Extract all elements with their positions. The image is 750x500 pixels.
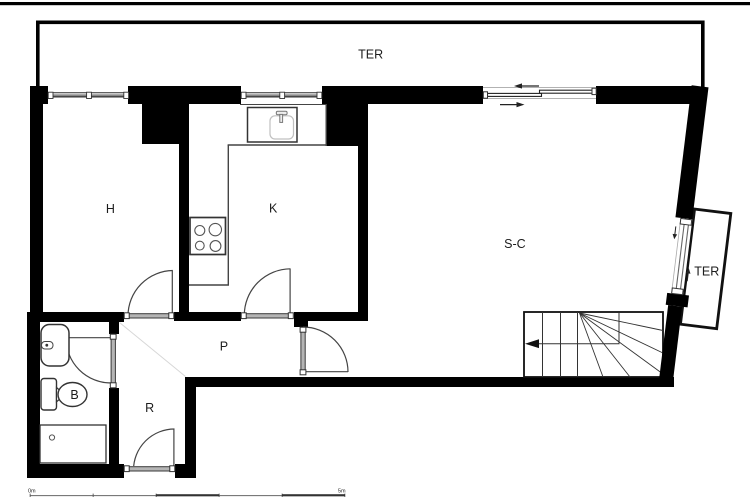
svg-text:5m: 5m xyxy=(338,489,346,495)
svg-text:S-C: S-C xyxy=(504,237,526,251)
svg-text:B: B xyxy=(70,388,78,402)
svg-text:K: K xyxy=(269,201,278,215)
svg-text:TER: TER xyxy=(358,48,383,62)
svg-text:P: P xyxy=(220,340,228,354)
svg-text:H: H xyxy=(106,202,115,216)
svg-text:0m: 0m xyxy=(28,489,36,495)
svg-text:R: R xyxy=(145,401,154,415)
svg-text:TER: TER xyxy=(694,265,719,279)
